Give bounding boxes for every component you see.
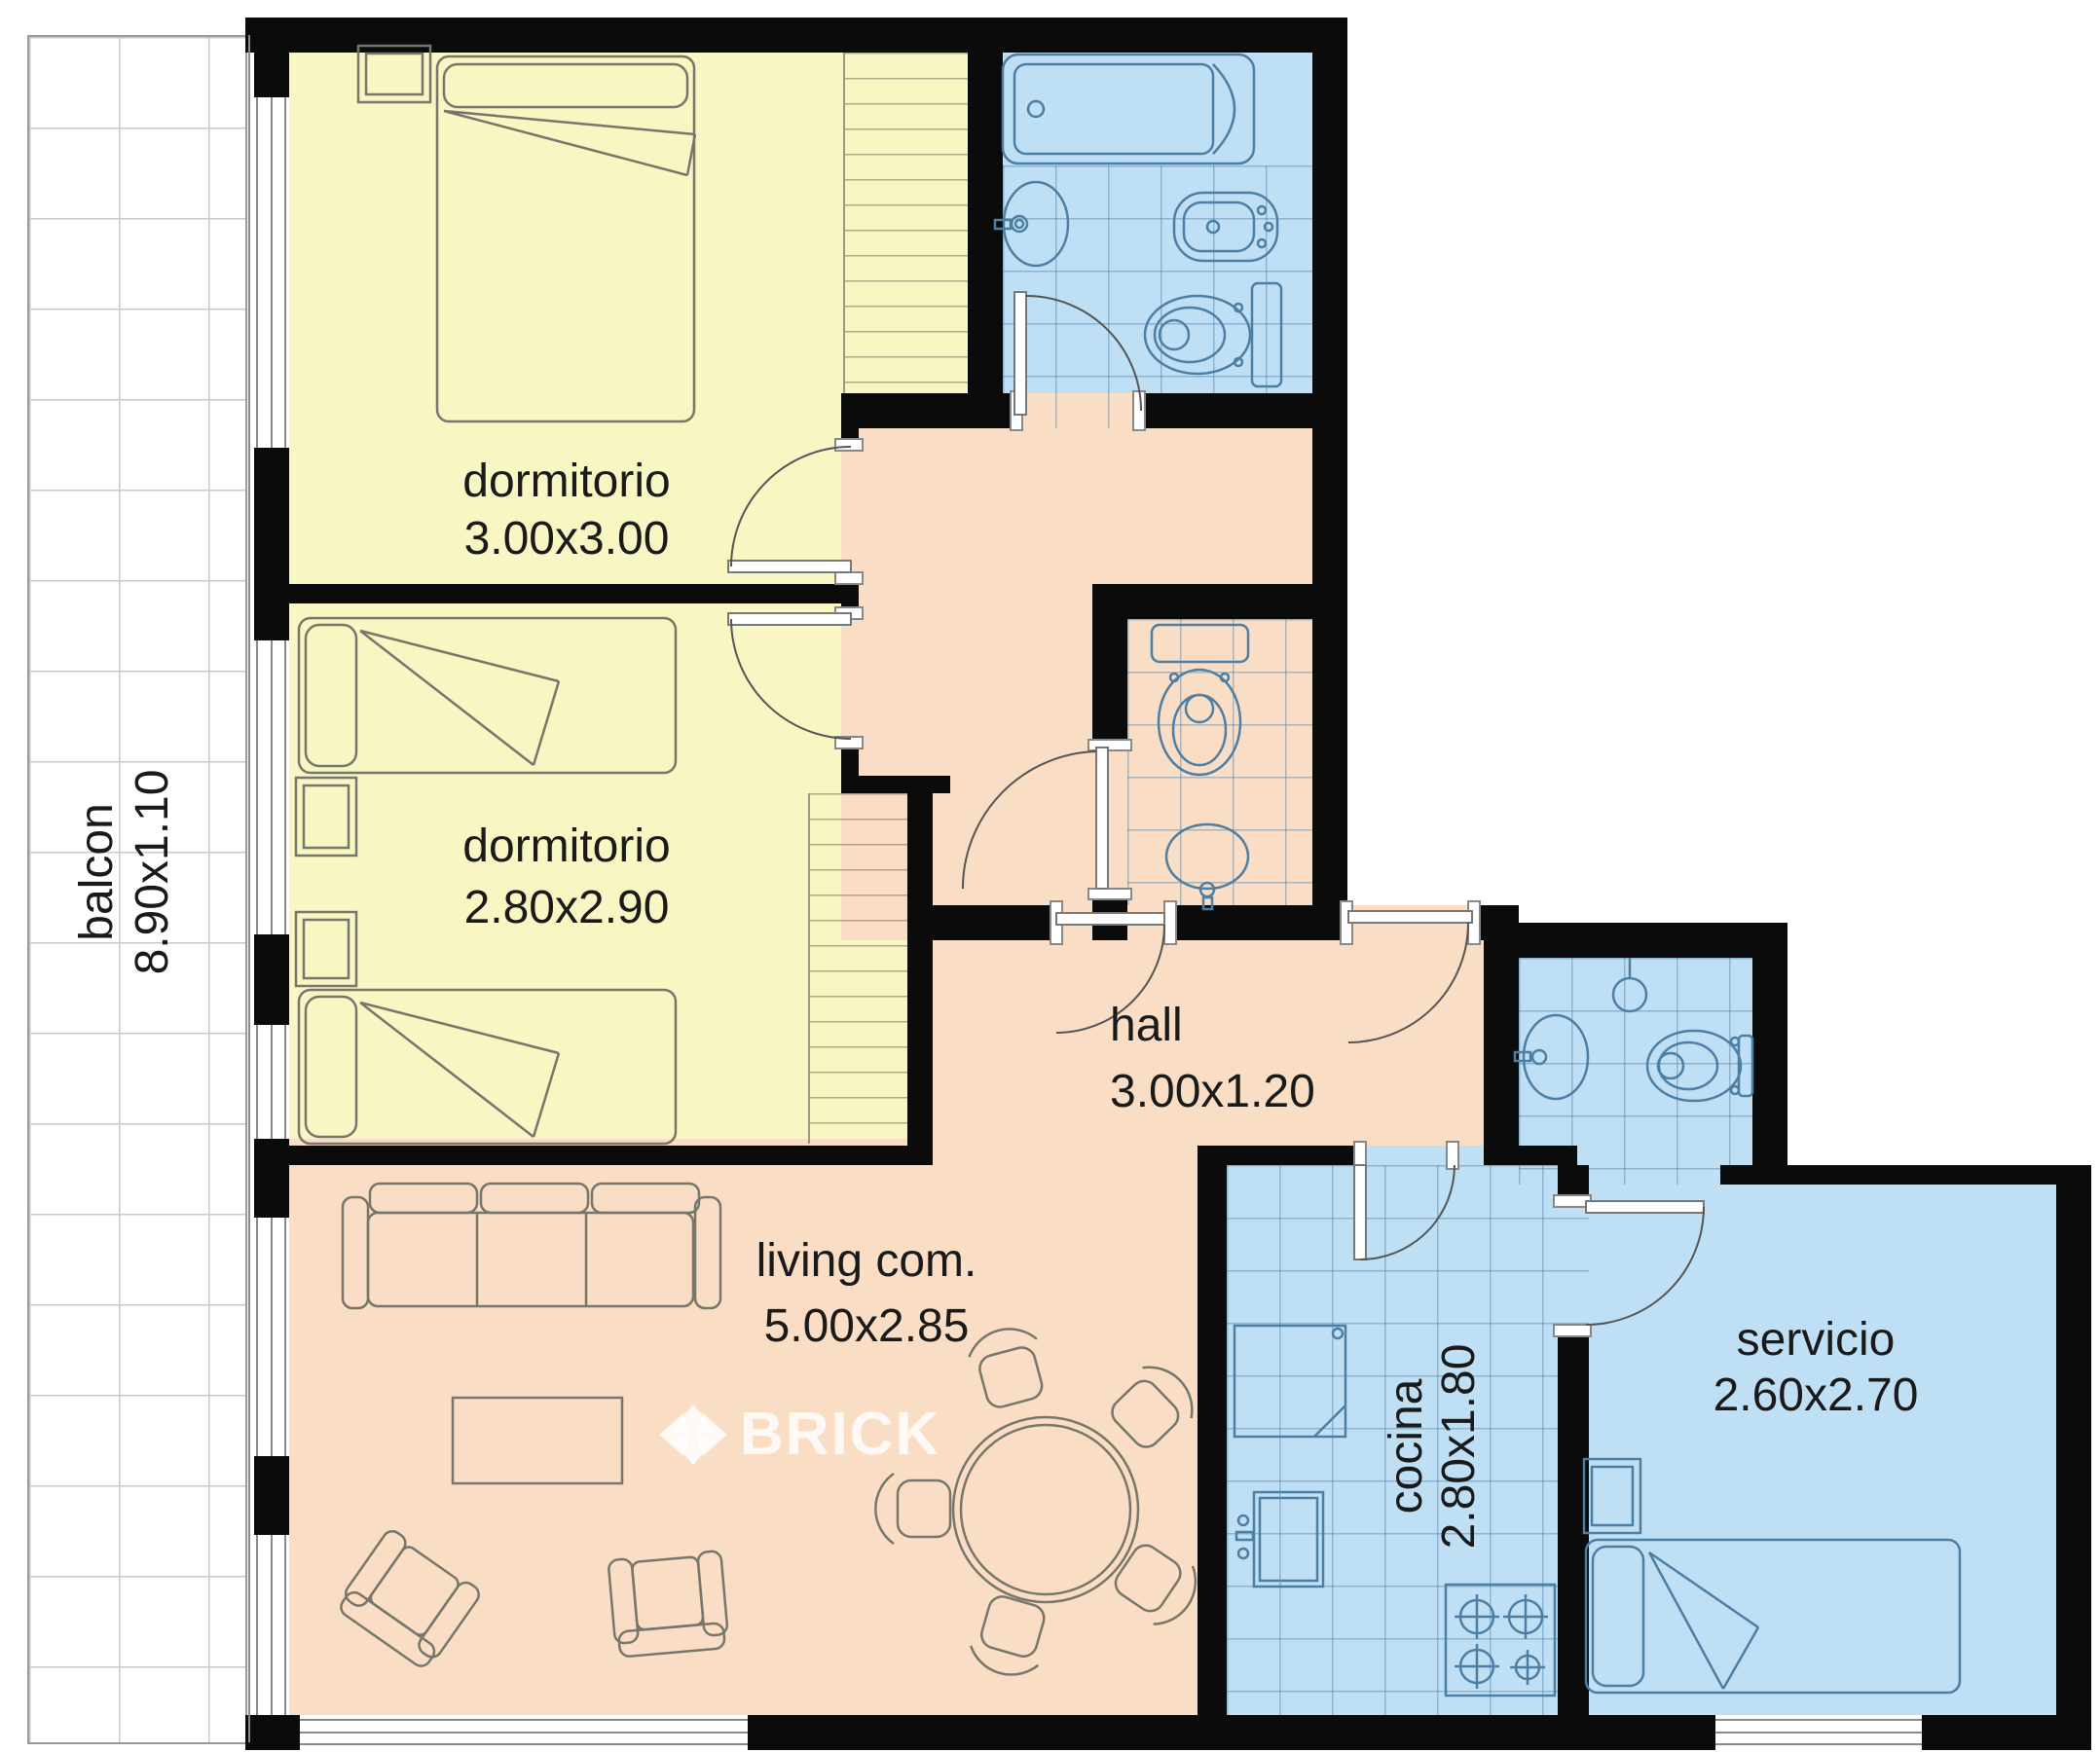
door-servicio [1554, 1195, 1704, 1336]
bathtub-icon [1003, 55, 1254, 164]
coffee-table-icon [453, 1398, 622, 1483]
chair-icon [966, 1591, 1053, 1683]
chair-icon [1107, 1534, 1208, 1634]
fridge-icon [1234, 1326, 1345, 1437]
label-hall: hall3.00x1.20 [1110, 993, 1315, 1125]
label-cocina: cocina2.80x1.80 [1381, 1344, 1486, 1550]
label-balcon: balcon8.90x1.10 [69, 770, 180, 975]
stove-icon [1446, 1585, 1555, 1696]
kitchen-sink-icon [1236, 1492, 1323, 1587]
toilet-icon [1647, 1031, 1752, 1101]
armchair-icon [334, 1527, 482, 1671]
chair-icon [1102, 1355, 1204, 1457]
armchair-icon [608, 1551, 729, 1658]
sink-icon [1515, 1015, 1588, 1099]
single-bed-icon [299, 618, 676, 773]
sink-icon [995, 182, 1068, 266]
nightstand-icon [296, 912, 356, 986]
nightstand-icon [296, 778, 356, 856]
label-living: living com.5.00x2.85 [756, 1228, 977, 1359]
chair-icon [875, 1474, 950, 1544]
label-dormitorio-1: dormitorio3.00x3.00 [462, 453, 670, 567]
label-servicio: servicio2.60x2.70 [1713, 1312, 1919, 1423]
toilet-icon [1152, 625, 1248, 775]
sink-icon [1166, 824, 1248, 909]
toilet-icon [1145, 283, 1281, 386]
double-bed-icon [437, 56, 695, 421]
door-dormitorio-2 [728, 607, 863, 748]
floor-plan: balcon8.90x1.10 dormitorio3.00x3.00 dorm… [0, 0, 2100, 1752]
shower-icon [1613, 958, 1646, 1011]
dining-table-icon [953, 1417, 1138, 1602]
nightstand-icon [358, 46, 430, 102]
single-bed-icon [299, 990, 676, 1144]
nightstand-icon [1584, 1459, 1640, 1533]
brick-watermark: BRICK [658, 1400, 940, 1469]
door-dormitorio-1 [728, 439, 863, 584]
sofa-icon [343, 1184, 720, 1308]
door-bathroom-main [1011, 292, 1145, 430]
door-toilet [963, 740, 1131, 899]
single-bed-icon [1586, 1540, 1960, 1693]
chair-icon [965, 1322, 1051, 1412]
door-cocina [1354, 1142, 1458, 1259]
brick-logo-icon [658, 1404, 728, 1466]
brick-watermark-text: BRICK [740, 1400, 940, 1469]
bidet-icon [1174, 193, 1277, 261]
door-entry [1341, 901, 1480, 1042]
label-dormitorio-2: dormitorio2.80x2.90 [462, 816, 670, 938]
